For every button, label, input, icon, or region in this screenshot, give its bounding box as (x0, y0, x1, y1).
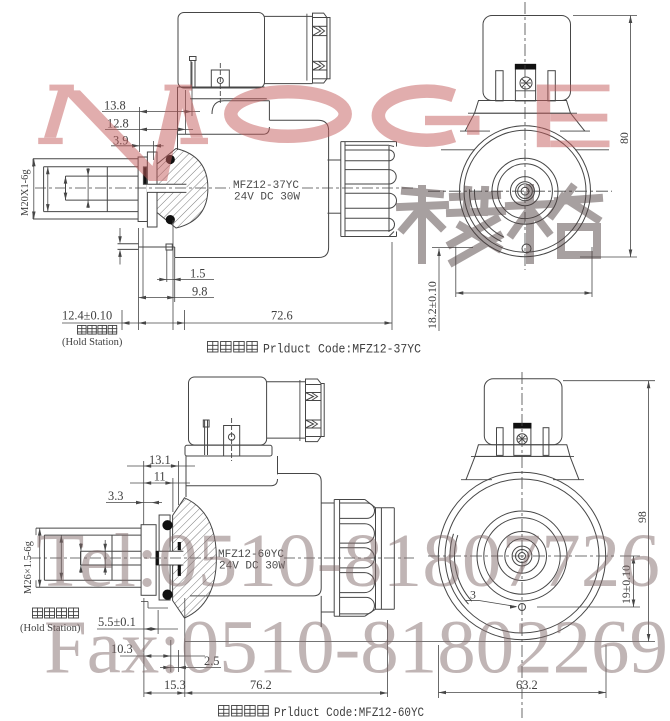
svg-text:Prlduct Code:MFZ12-37YC: Prlduct Code:MFZ12-37YC (263, 342, 421, 357)
svg-text:9.8: 9.8 (192, 285, 208, 299)
svg-text:12.4±0.10: 12.4±0.10 (62, 309, 112, 323)
svg-text:18.2±0.10: 18.2±0.10 (425, 281, 439, 329)
svg-text:13.8: 13.8 (104, 99, 126, 113)
svg-text:24V DC 30W: 24V DC 30W (234, 192, 300, 204)
svg-text:Fax:0510-81802269: Fax:0510-81802269 (44, 606, 668, 690)
svg-text:MFZ12-37YC: MFZ12-37YC (233, 180, 299, 192)
svg-text:72.6: 72.6 (271, 309, 293, 323)
svg-text:1.5: 1.5 (190, 267, 206, 281)
svg-text:3.3: 3.3 (108, 489, 124, 503)
svg-text:80: 80 (617, 132, 631, 144)
svg-text:Tel:0510-81807726: Tel:0510-81807726 (36, 519, 660, 603)
svg-text:M20X1-6g: M20X1-6g (20, 169, 31, 216)
svg-text:M26×1.5-6g: M26×1.5-6g (23, 540, 34, 594)
svg-text:11: 11 (154, 470, 166, 484)
svg-text:(Hold Station): (Hold Station) (62, 337, 123, 348)
svg-text:13.1: 13.1 (149, 453, 171, 467)
svg-text:Prlduct Code:MFZ12-60YC: Prlduct Code:MFZ12-60YC (274, 705, 424, 720)
